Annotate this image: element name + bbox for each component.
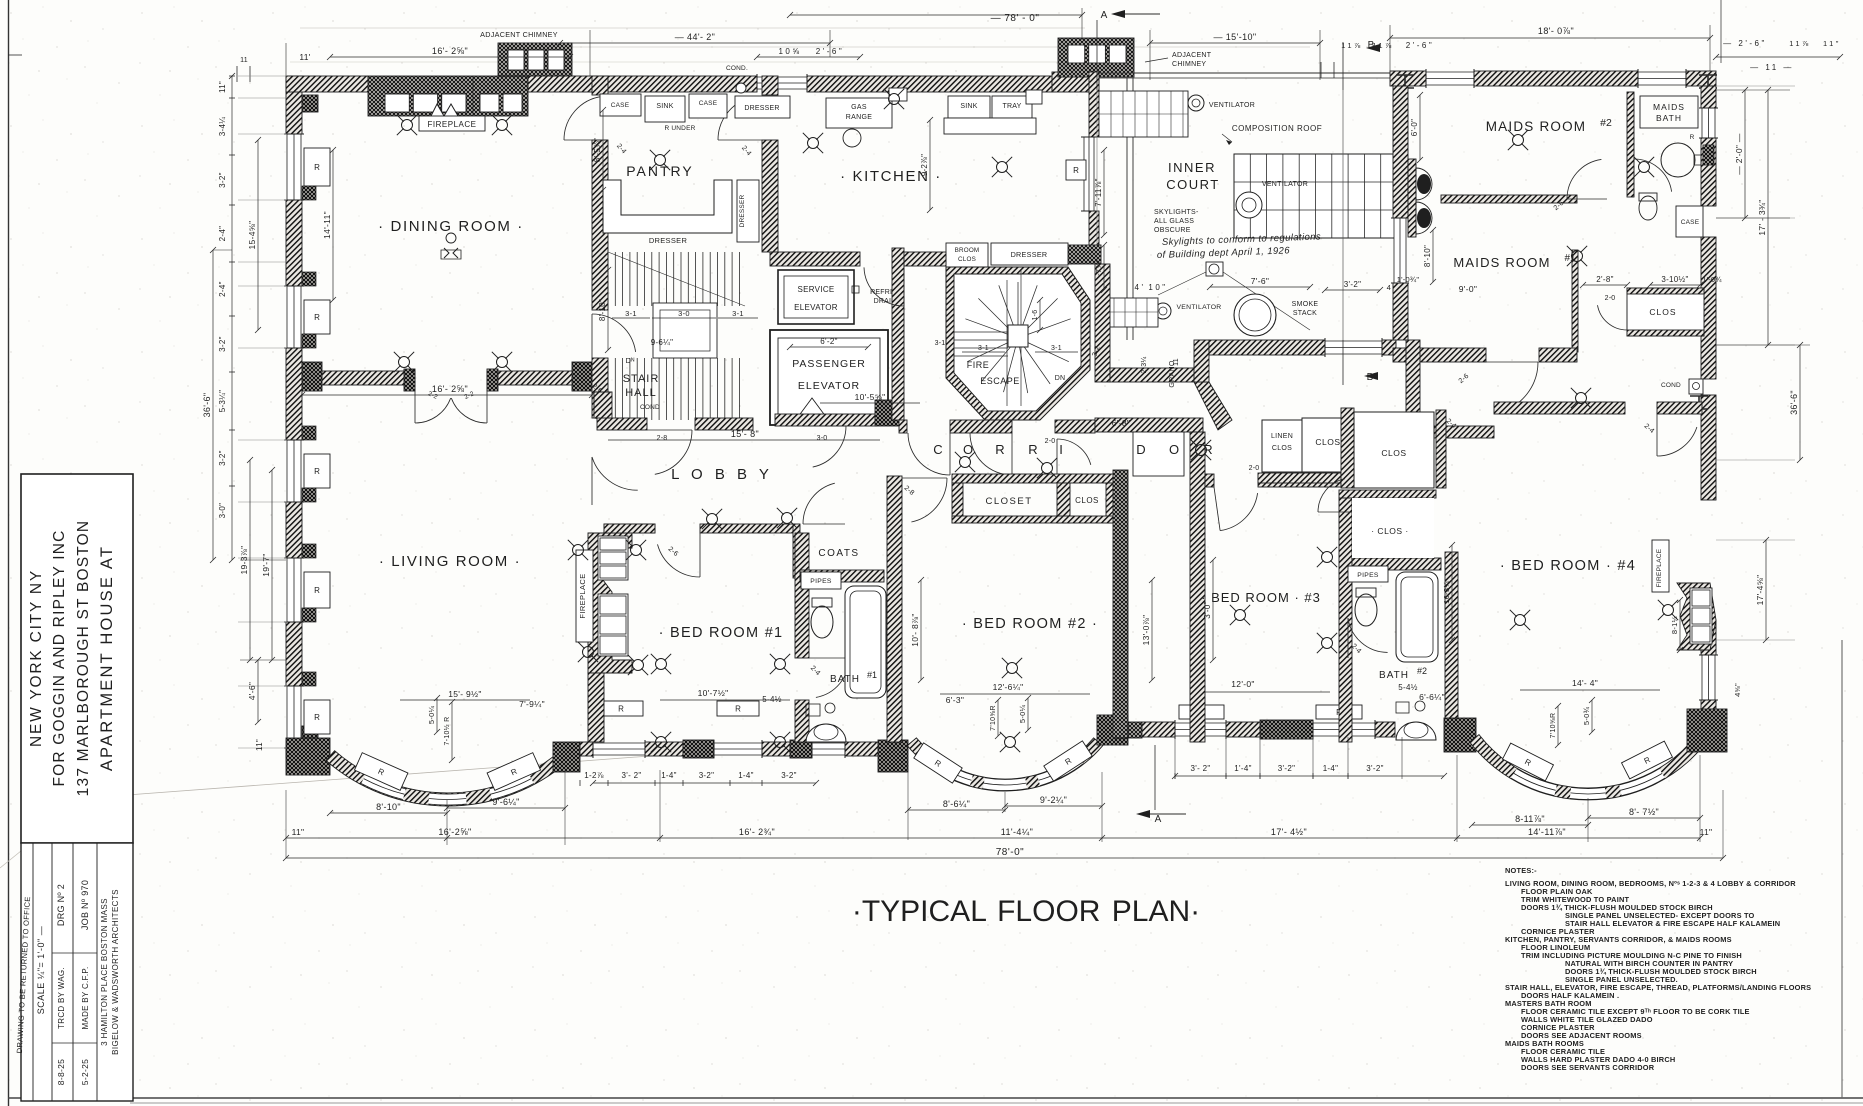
svg-text:-7⅞": -7⅞" (1094, 259, 1103, 276)
svg-text:A: A (1101, 10, 1108, 21)
svg-text:9'-6¼": 9'-6¼" (492, 797, 519, 807)
svg-text:COND: COND (1661, 382, 1681, 389)
svg-text:17'- 4½": 17'- 4½" (1271, 827, 1307, 837)
svg-text:STACK: STACK (1293, 310, 1317, 317)
svg-text:R: R (735, 705, 741, 714)
svg-text:16'-2⅝": 16'-2⅝" (438, 827, 471, 837)
svg-text:8-11⅞": 8-11⅞" (1515, 814, 1545, 824)
svg-text:14'-11⅞": 14'-11⅞" (1528, 827, 1566, 837)
svg-text:BIGELOW & WADSWORTH ARCHITECT: BIGELOW & WADSWORTH ARCHITECTS (111, 889, 120, 1055)
svg-text:ADJACENT CHIMNEY: ADJACENT CHIMNEY (480, 30, 558, 39)
svg-text:11": 11" (292, 827, 305, 837)
svg-text:1'-0¾": 1'-0¾" (1397, 275, 1420, 284)
svg-text:3-1: 3-1 (1051, 345, 1062, 352)
svg-text:15'- 8": 15'- 8" (731, 429, 759, 439)
svg-text:ALL GLASS: ALL GLASS (1154, 218, 1194, 225)
svg-text:6'-3": 6'-3" (946, 695, 964, 705)
svg-text:TRCD BY WAG.: TRCD BY WAG. (57, 967, 66, 1029)
svg-text:BATH: BATH (830, 674, 860, 685)
svg-text:L O B B Y: L O B B Y (671, 466, 773, 483)
svg-text:RANGE: RANGE (846, 114, 872, 121)
svg-text:3-2": 3-2" (218, 172, 227, 188)
svg-text:11": 11" (255, 739, 264, 751)
svg-text:D: D (1136, 442, 1145, 457)
svg-text:18'- 0⅞": 18'- 0⅞" (1538, 26, 1574, 36)
svg-text:2-0: 2-0 (1045, 438, 1056, 445)
svg-text:CLOS: CLOS (1381, 448, 1406, 458)
svg-text:5-0¼: 5-0¼ (1018, 704, 1027, 723)
svg-text:6'-2": 6'-2" (820, 337, 837, 346)
svg-text:R: R (1073, 166, 1079, 175)
svg-text:COND.: COND. (726, 65, 748, 72)
svg-text:1'-0¾: 1'-0¾ (1702, 275, 1722, 284)
svg-text:MAIDS: MAIDS (1653, 102, 1685, 112)
svg-text:· BED ROOM #2 ·: · BED ROOM #2 · (962, 616, 1098, 632)
svg-text:7'10⅝R: 7'10⅝R (1550, 713, 1557, 739)
svg-text:VENTILATOR: VENTILATOR (1262, 181, 1308, 188)
svg-text:1-4": 1-4" (738, 771, 754, 780)
svg-text:9'-2¼": 9'-2¼" (1040, 795, 1067, 805)
svg-text:5-4½: 5-4½ (1398, 683, 1417, 692)
svg-text:14'- 4": 14'- 4" (1572, 678, 1598, 688)
svg-text:8'-5⅞": 8'-5⅞" (593, 138, 602, 162)
svg-text:BATH: BATH (1656, 113, 1682, 123)
svg-text:4: 4 (1387, 283, 1394, 292)
svg-text:3'-0": 3'-0" (1203, 601, 1212, 618)
svg-text:· BED ROOM · #3: · BED ROOM · #3 (1201, 590, 1321, 605)
svg-text:3-0": 3-0" (218, 503, 227, 519)
svg-text:R: R (314, 586, 320, 595)
svg-text:I: I (1059, 442, 1063, 457)
svg-text:COMPOSITION ROOF: COMPOSITION ROOF (1232, 124, 1322, 133)
svg-text:MAIDS ROOM: MAIDS ROOM (1486, 119, 1587, 134)
svg-text:VENTILATOR: VENTILATOR (1176, 304, 1221, 311)
svg-text:STAIR: STAIR (623, 373, 660, 385)
svg-text:FIREPLACE: FIREPLACE (1656, 548, 1663, 587)
svg-text:16-3¼: 16-3¼ (1442, 581, 1451, 604)
svg-text:5-0¼: 5-0¼ (427, 705, 436, 724)
svg-text:COATS: COATS (818, 548, 859, 559)
svg-text:SINK: SINK (656, 103, 673, 110)
svg-text:LINEN: LINEN (1271, 433, 1293, 440)
svg-text:Dᴺ: Dᴺ (625, 356, 635, 365)
svg-text:DRESSER: DRESSER (649, 236, 688, 245)
svg-text:SMOKE: SMOKE (1292, 301, 1319, 308)
svg-text:1-4": 1-4" (661, 771, 677, 780)
svg-text:11": 11" (1823, 39, 1841, 48)
svg-text:· CLOS ·: · CLOS · (1371, 526, 1409, 536)
svg-text:CHIMNEY: CHIMNEY (1172, 61, 1206, 68)
svg-text:11: 11 (1173, 358, 1180, 366)
svg-text:2-3¼: 2-3¼ (1141, 357, 1148, 374)
svg-text:2-4": 2-4" (218, 281, 227, 297)
svg-text:11": 11" (1700, 827, 1713, 837)
svg-text:2-8: 2-8 (657, 435, 668, 442)
svg-text:DRESSER: DRESSER (739, 194, 746, 227)
svg-text:15'- 9½": 15'- 9½" (448, 689, 482, 699)
svg-text:2-0: 2-0 (1249, 465, 1260, 472)
svg-text:R UNDER: R UNDER (664, 125, 695, 132)
svg-text:HALL: HALL (625, 387, 657, 399)
svg-text:NEW YORK CITY NY: NEW YORK CITY NY (28, 569, 45, 747)
svg-text:3'- 2": 3'- 2" (1191, 764, 1211, 773)
svg-text:3-2": 3-2" (218, 336, 227, 352)
svg-text:8'- 7½": 8'- 7½" (1629, 807, 1659, 817)
svg-text:11⅞: 11⅞ (1372, 41, 1394, 50)
svg-text:16'- 2⅝": 16'- 2⅝" (432, 384, 468, 394)
svg-text:7'-6": 7'-6" (1251, 276, 1269, 286)
svg-text:3'-2": 3'-2" (1366, 764, 1383, 773)
svg-text:10⅝: 10⅝ (778, 47, 801, 56)
svg-text:SINK: SINK (960, 103, 977, 110)
svg-text:O: O (1169, 442, 1179, 457)
svg-text:CLOS: CLOS (1649, 307, 1676, 317)
svg-text:· DINING ROOM ·: · DINING ROOM · (378, 218, 524, 235)
svg-text:12'-6¼": 12'-6¼" (993, 682, 1024, 692)
svg-text:7-10½ R: 7-10½ R (443, 717, 451, 746)
svg-text:8'-10": 8'-10" (376, 802, 401, 812)
svg-text:R: R (314, 163, 320, 172)
svg-text:2'-6": 2'-6" (1406, 41, 1434, 50)
svg-text:CLOS: CLOS (1272, 445, 1292, 452)
svg-text:#2: #2 (1600, 117, 1612, 129)
svg-text:11'-4¼": 11'-4¼" (1001, 827, 1034, 837)
svg-text:2'-8": 2'-8" (1596, 275, 1613, 284)
svg-text:3-10½": 3-10½" (1661, 275, 1688, 284)
svg-text:4'-6": 4'-6" (247, 682, 257, 700)
svg-text:R: R (314, 313, 320, 322)
svg-text:TRAY: TRAY (1003, 103, 1022, 110)
svg-text:GAS: GAS (851, 104, 867, 111)
svg-text:3'-2": 3'-2" (1344, 280, 1361, 289)
svg-text:PIPES: PIPES (810, 578, 832, 585)
svg-text:DOORS SEE SERVANTS CORRID: DOORS SEE SERVANTS CORRIDOR (1521, 1063, 1655, 1072)
svg-text:CASE: CASE (1681, 219, 1700, 226)
svg-text:3-2": 3-2" (781, 771, 797, 780)
svg-text:SERVICE: SERVICE (797, 285, 834, 294)
svg-text:6'-8": 6'-8" (1112, 418, 1130, 428)
svg-text:1-6: 1-6 (1032, 309, 1039, 320)
svg-text:FIRE: FIRE (967, 360, 990, 370)
svg-text:ELEVATOR: ELEVATOR (798, 380, 860, 392)
svg-text:36'-6": 36'-6" (202, 393, 212, 418)
svg-text:10": 10" (1148, 283, 1167, 292)
svg-text:3'-2": 3'-2" (1278, 764, 1295, 773)
svg-text:APARTMENT HOUSE AT: APARTMENT HOUSE AT (98, 545, 116, 771)
svg-text:5-0¾: 5-0¾ (1582, 706, 1591, 725)
svg-text:17'-4⅝": 17'-4⅝" (1755, 575, 1765, 606)
svg-text:12'-0": 12'-0" (1231, 679, 1254, 689)
svg-text:MADE BY C.F.P.: MADE BY C.F.P. (81, 966, 90, 1029)
svg-text:FIREPLACE: FIREPLACE (428, 120, 477, 129)
svg-text:3-1: 3-1 (935, 340, 946, 347)
svg-text:3-2": 3-2" (699, 771, 715, 780)
svg-text:16'- 2¾": 16'- 2¾" (739, 827, 775, 837)
svg-text:R: R (995, 442, 1004, 457)
svg-text:R: R (314, 713, 320, 722)
svg-text:3-4¼: 3-4¼ (218, 117, 227, 136)
svg-text:11': 11' (299, 52, 310, 62)
svg-text:4⅝": 4⅝" (1733, 683, 1742, 697)
svg-text:CLOSET: CLOSET (985, 496, 1032, 507)
svg-text:BROOM: BROOM (955, 247, 980, 254)
svg-text:78'-0": 78'-0" (996, 847, 1024, 858)
svg-text:3-2": 3-2" (218, 450, 227, 466)
svg-text:11⅞: 11⅞ (1341, 41, 1363, 50)
svg-text:FOR GOGGIN AND RIPLEY INC: FOR GOGGIN AND RIPLEY INC (51, 529, 68, 786)
svg-text:C: C (933, 442, 942, 457)
svg-text:8'-10": 8'-10" (1423, 245, 1432, 267)
svg-text:15-4⅝": 15-4⅝" (247, 221, 257, 250)
svg-text:— 11 —: — 11 — (1750, 63, 1794, 72)
svg-text:5-4½: 5-4½ (762, 695, 781, 704)
svg-text:8'-10": 8'-10" (598, 299, 607, 321)
svg-text:2-4": 2-4" (218, 226, 227, 242)
svg-text:STAIR HALL ELEVATOR & FIRE ESC: STAIR HALL ELEVATOR & FIRE ESCAPE HALF K… (1565, 919, 1780, 928)
svg-text:8'-6¼": 8'-6¼" (943, 799, 970, 809)
svg-text:6'-6¼": 6'-6¼" (1419, 692, 1445, 702)
svg-text:CASE: CASE (699, 100, 718, 107)
svg-text:10'- 8⅞": 10'- 8⅞" (910, 613, 920, 647)
svg-text:11: 11 (240, 57, 248, 64)
svg-text:FIREPLACE: FIREPLACE (578, 573, 587, 618)
svg-text:DRESSER: DRESSER (744, 105, 779, 112)
svg-text:10'-7½": 10'-7½" (698, 688, 729, 698)
svg-text:DRESSER: DRESSER (1011, 250, 1048, 259)
svg-text:NOTES:-: NOTES:- (1505, 866, 1537, 875)
svg-text:2-0: 2-0 (1605, 295, 1616, 302)
svg-text:9'-0": 9'-0" (1459, 284, 1477, 294)
svg-text:17' - 3¾": 17' - 3¾" (1757, 199, 1767, 235)
svg-text:— 44'- 2": — 44'- 2" (675, 32, 716, 42)
svg-text:COURT: COURT (1166, 177, 1219, 192)
svg-text:DRG Nº 2: DRG Nº 2 (56, 884, 66, 926)
svg-text:3'- 2": 3'- 2" (622, 771, 642, 780)
svg-text:36'-6": 36'-6" (1789, 390, 1799, 415)
svg-text:3-1: 3-1 (732, 309, 744, 318)
svg-text:11": 11" (218, 81, 227, 93)
svg-text:7'10⅝R: 7'10⅝R (990, 705, 997, 731)
svg-text:SCALE ¼"= 1'-0" —: SCALE ¼"= 1'-0" — (36, 926, 46, 1014)
svg-text:ADJACENT: ADJACENT (1172, 52, 1212, 59)
svg-text:9-2⅞": 9-2⅞" (920, 154, 929, 177)
svg-text:R: R (314, 467, 320, 476)
svg-text:CASE: CASE (611, 102, 630, 109)
svg-text:· BED ROOM · #4: · BED ROOM · #4 (1500, 558, 1636, 574)
svg-text:14'-11": 14'-11" (322, 211, 332, 239)
svg-text:3 HAMILTON PLACE BOSTON MASS: 3 HAMILTON PLACE BOSTON MASS (100, 898, 109, 1046)
svg-text:4': 4' (1135, 283, 1146, 292)
svg-text:CLOS: CLOS (1315, 437, 1340, 447)
svg-text:COND: COND (640, 404, 660, 411)
svg-text:INNER: INNER (1168, 160, 1216, 175)
svg-text:#1: #1 (867, 670, 877, 680)
svg-text:7'-9¼": 7'-9¼" (519, 699, 545, 709)
svg-text:CLOS: CLOS (1075, 496, 1099, 505)
svg-text:— 78' - 0": — 78' - 0" (991, 13, 1040, 24)
svg-text:BATH: BATH (1379, 670, 1409, 681)
svg-text:6'-0": 6'-0" (1410, 119, 1419, 136)
svg-text:5-2-25: 5-2-25 (80, 1059, 90, 1085)
svg-text:PIPES: PIPES (1357, 572, 1379, 579)
svg-text:ELEVATOR: ELEVATOR (794, 303, 838, 312)
svg-text:8-8-25: 8-8-25 (56, 1059, 66, 1085)
svg-text:R: R (618, 705, 624, 714)
svg-text:137 MARLBOROUGH ST BOSTON: 137 MARLBOROUGH ST BOSTON (75, 520, 92, 797)
svg-text:— 15'-10": — 15'-10" (1213, 32, 1256, 42)
svg-text:SKYLIGHTS-: SKYLIGHTS- (1154, 209, 1199, 216)
svg-text:1-4": 1-4" (1323, 764, 1339, 773)
svg-text:3-0: 3-0 (817, 435, 828, 442)
svg-text:13'-0⅞": 13'-0⅞" (1141, 615, 1151, 646)
svg-text:5-3¼": 5-3¼" (218, 390, 227, 413)
svg-text:ESCAPE: ESCAPE (980, 376, 1020, 386)
svg-text:— 2'-0" —: — 2'-0" — (1734, 133, 1744, 175)
svg-text:OBSCURE: OBSCURE (1154, 227, 1191, 234)
svg-text:· BED ROOM #1: · BED ROOM #1 (659, 625, 784, 641)
svg-text:1'-4": 1'-4" (1234, 764, 1251, 773)
svg-text:16'- 2⅝": 16'- 2⅝" (432, 46, 468, 56)
svg-text:3-1: 3-1 (978, 345, 989, 352)
svg-text:JOB Nº 970: JOB Nº 970 (80, 880, 90, 930)
svg-text:10'-5⅝": 10'-5⅝" (855, 392, 886, 402)
svg-text:PASSENGER: PASSENGER (792, 358, 866, 370)
svg-text:MAIDS ROOM: MAIDS ROOM (1453, 255, 1550, 270)
svg-text:R: R (1690, 134, 1695, 141)
svg-text:9-6¼": 9-6¼" (651, 338, 674, 347)
svg-text:VENTILATOR: VENTILATOR (1209, 102, 1255, 109)
svg-text:A: A (1155, 814, 1162, 825)
svg-text:3-0: 3-0 (678, 309, 690, 318)
svg-text:11⅞: 11⅞ (1789, 39, 1811, 48)
svg-text:· LIVING ROOM ·: · LIVING ROOM · (379, 553, 521, 570)
svg-text:8-1½: 8-1½ (1670, 615, 1679, 634)
svg-text:#2: #2 (1417, 666, 1427, 676)
svg-text:19'-7": 19'-7" (261, 553, 271, 576)
svg-text:·TYPICAL FLOOR PLAN·: ·TYPICAL FLOOR PLAN· (852, 895, 1200, 928)
svg-text:— 2'-6": — 2'-6" (1723, 39, 1767, 48)
svg-text:1-2⅞: 1-2⅞ (584, 771, 603, 780)
svg-text:R: R (1028, 442, 1037, 457)
svg-text:7'-11⅞": 7'-11⅞" (1094, 178, 1103, 207)
svg-text:DN: DN (1055, 375, 1066, 382)
svg-text:CLOS: CLOS (958, 256, 976, 263)
svg-text:3-1: 3-1 (625, 309, 637, 318)
